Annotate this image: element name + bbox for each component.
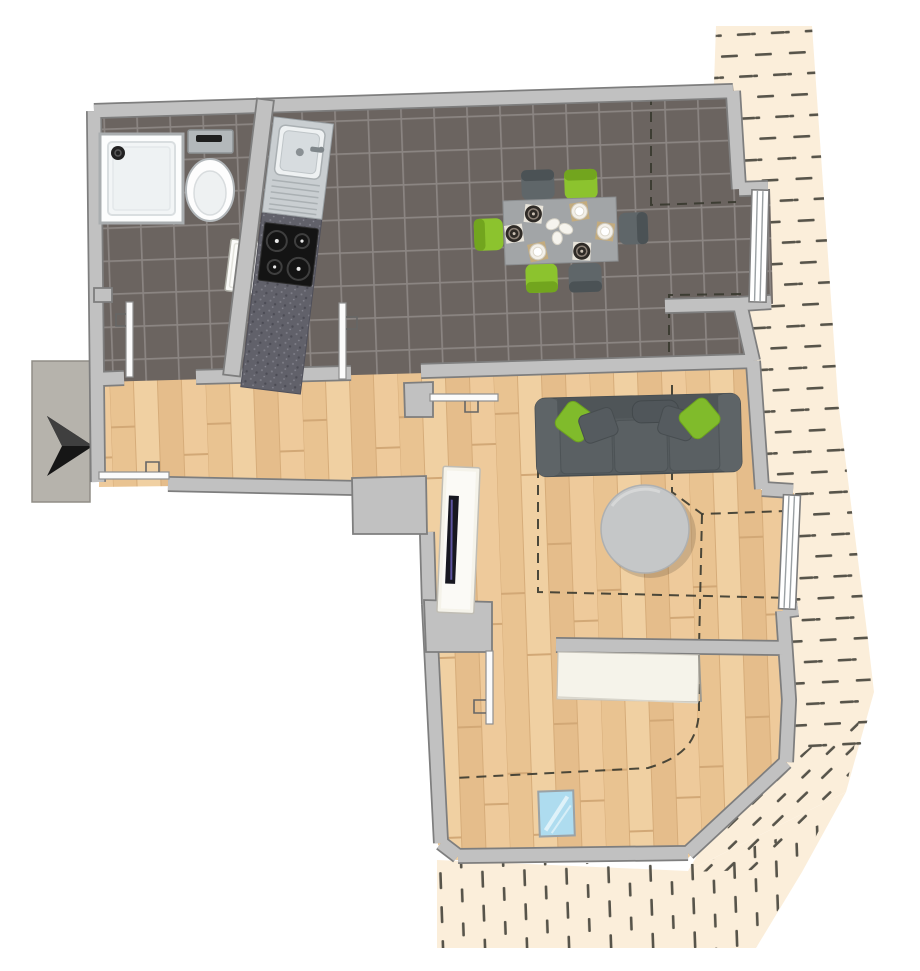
- place-setting-white-1: [569, 201, 590, 222]
- entrance: [32, 361, 93, 502]
- dining-chair-right-gray: [618, 212, 648, 245]
- floor-plan-svg: [0, 0, 920, 971]
- dining-chair-left-green: [474, 218, 504, 251]
- place-setting-white-2: [595, 221, 615, 241]
- place-setting-dark-1: [524, 204, 544, 224]
- dining-chair-bottom-gray: [568, 263, 602, 293]
- cooktop: [258, 222, 319, 286]
- place-setting-dark-3: [572, 242, 591, 261]
- tv-lowboard: [437, 466, 480, 613]
- dining-chair-top-gray: [521, 169, 555, 200]
- skylight-roof-window: [538, 790, 575, 836]
- dining-chair-bottom-green: [525, 263, 558, 293]
- dining-terrace-window: [749, 190, 769, 302]
- dining-chair-top-green: [564, 169, 598, 200]
- sideboard: [557, 652, 702, 703]
- sofa: [535, 393, 742, 476]
- shower-tray: [100, 134, 183, 223]
- floor-plan-page: [0, 0, 920, 971]
- wall-chunk-hall-step: [352, 476, 427, 534]
- place-setting-dark-2: [504, 223, 524, 243]
- coffee-table: [601, 485, 689, 573]
- wall-stub-bathroom-left: [94, 288, 112, 302]
- wall-chunk-living-door: [404, 382, 433, 417]
- sofa-armrest-left: [535, 398, 561, 477]
- place-setting-white-3: [527, 241, 548, 262]
- kitchen-sink: [262, 117, 333, 220]
- shower-drain: [111, 146, 125, 160]
- toilet: [186, 130, 234, 221]
